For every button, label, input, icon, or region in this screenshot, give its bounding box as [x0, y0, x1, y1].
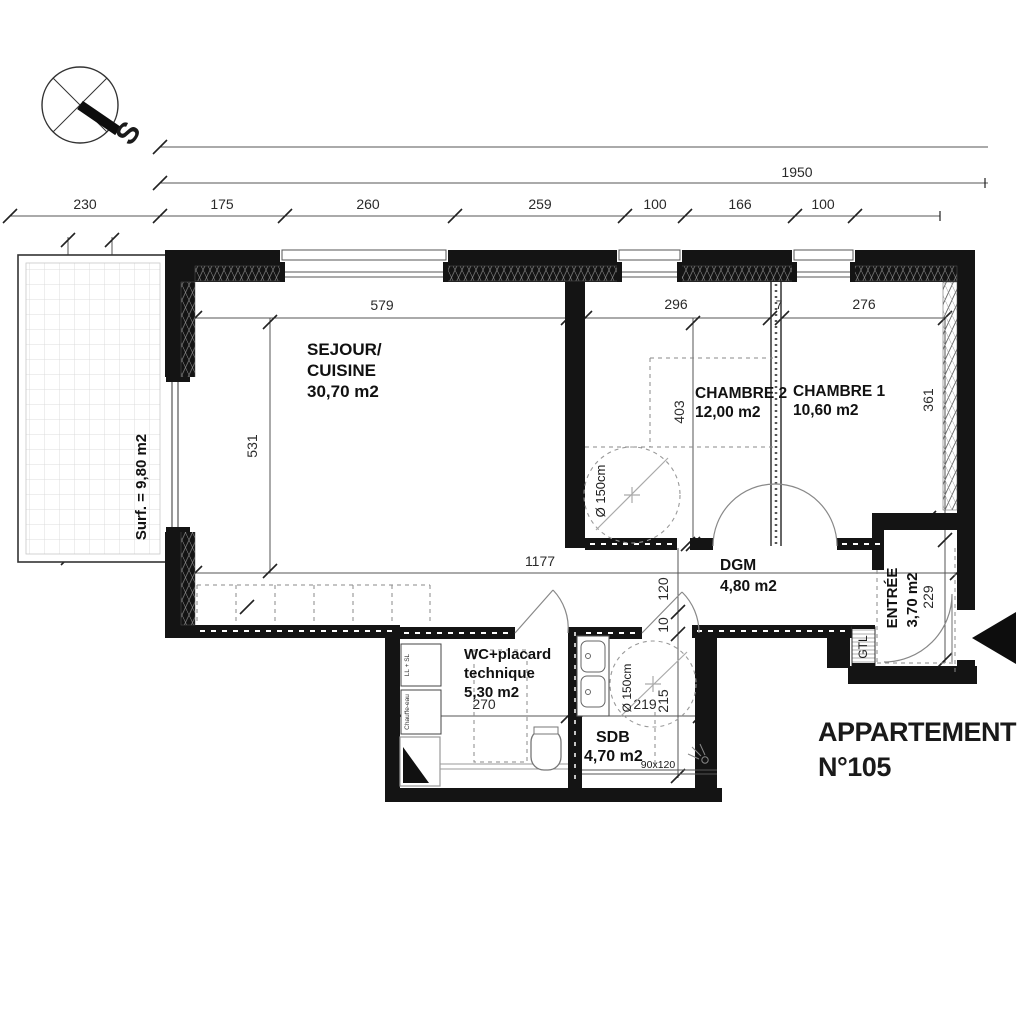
room-label-sdb: SDB 4,70 m2: [584, 729, 643, 765]
floor-plan-page: S 1950 230 175 260 259 100 166 100 470 1…: [0, 0, 1024, 1024]
dim-120: 120: [655, 577, 671, 601]
sejour-area: 30,70 m2: [307, 382, 379, 401]
dim-230: 230: [73, 196, 97, 212]
entree-name: ENTRÉE: [884, 568, 901, 629]
chambre1-area: 10,60 m2: [793, 402, 859, 419]
appliance-water-heater-label: Chauffe-eau: [404, 694, 411, 730]
dim-total-width: 1950: [781, 164, 812, 180]
sejour-name-1: SEJOUR/: [307, 340, 382, 359]
gtl-shaft: GTL: [852, 625, 875, 667]
window-chambre1: [792, 248, 855, 284]
dim-100b: 100: [811, 196, 835, 212]
chambre2-name: CHAMBRE 2: [695, 385, 787, 402]
room-label-dgm: DGM 4,80 m2: [720, 557, 777, 595]
dim-579: 579: [370, 297, 394, 313]
window-chambre2: [617, 248, 682, 284]
toilet-icon: [531, 729, 561, 770]
dim-215: 215: [655, 689, 671, 713]
dim-296: 296: [664, 296, 688, 312]
window-sejour: [280, 248, 448, 284]
vanity-double-basin: [577, 636, 609, 716]
entry-arrow-icon: [972, 612, 1016, 664]
wc-area: 5,30 m2: [464, 684, 519, 701]
dim-276: 276: [852, 296, 876, 312]
terrace-surface-label: Surf. = 9,80 m2: [133, 434, 150, 540]
title-line2: N°105: [818, 752, 891, 782]
dim-259: 259: [528, 196, 552, 212]
chambre1-name: CHAMBRE 1: [793, 383, 886, 400]
circle-label-chambre2: Ø 150cm: [593, 465, 608, 518]
sejour-name-2: CUISINE: [307, 361, 376, 380]
dim-10: 10: [655, 617, 671, 633]
sink-icon: [403, 747, 429, 783]
dim-229: 229: [920, 585, 936, 609]
circle-label-sdb: Ø 150cm: [620, 664, 634, 713]
room-label-chambre1: CHAMBRE 1 10,60 m2: [793, 383, 886, 419]
entree-area: 3,70 m2: [904, 572, 921, 627]
dim-100a: 100: [643, 196, 667, 212]
dim-shower-size: 90x120: [641, 759, 676, 771]
dim-219: 219: [633, 696, 657, 712]
toilet-tank: [534, 727, 558, 734]
compass-north-arrow: S: [42, 67, 148, 151]
dim-531: 531: [244, 434, 260, 458]
dim-361: 361: [920, 388, 936, 412]
wc-name-1: WC+placard: [464, 646, 551, 663]
floor-plan-drawing: S 1950 230 175 260 259 100 166 100 470 1…: [0, 0, 1024, 1024]
window-terrace-door: [163, 377, 197, 532]
title-line1: APPARTEMENT: [818, 717, 1017, 747]
kitchen-units-outline: [197, 585, 430, 623]
room-label-sejour: SEJOUR/ CUISINE 30,70 m2: [307, 340, 382, 401]
dim-1177: 1177: [525, 553, 555, 569]
appliance-washer-label: LL + SL: [404, 653, 411, 676]
plan-title: APPARTEMENT N°105: [818, 717, 1017, 782]
wc-name-2: technique: [464, 665, 535, 682]
dimension-labels-top: 1950 230 175 260 259 100 166 100: [73, 164, 835, 212]
room-label-chambre2: CHAMBRE 2 12,00 m2: [695, 385, 787, 421]
dim-260: 260: [356, 196, 380, 212]
chambre2-area: 12,00 m2: [695, 404, 761, 421]
dim-175: 175: [210, 196, 234, 212]
sdb-area: 4,70 m2: [584, 748, 643, 765]
dgm-name: DGM: [720, 557, 756, 574]
sdb-name: SDB: [596, 729, 630, 746]
dim-166: 166: [728, 196, 752, 212]
room-label-entree: ENTRÉE 3,70 m2: [884, 568, 921, 629]
terrace: Surf. = 9,80 m2: [18, 255, 168, 562]
dim-403: 403: [671, 400, 687, 424]
gtl-label: GTL: [856, 635, 870, 659]
dgm-area: 4,80 m2: [720, 578, 777, 595]
door-wc: [515, 590, 568, 633]
room-label-wc: WC+placard technique 5,30 m2: [464, 646, 551, 701]
